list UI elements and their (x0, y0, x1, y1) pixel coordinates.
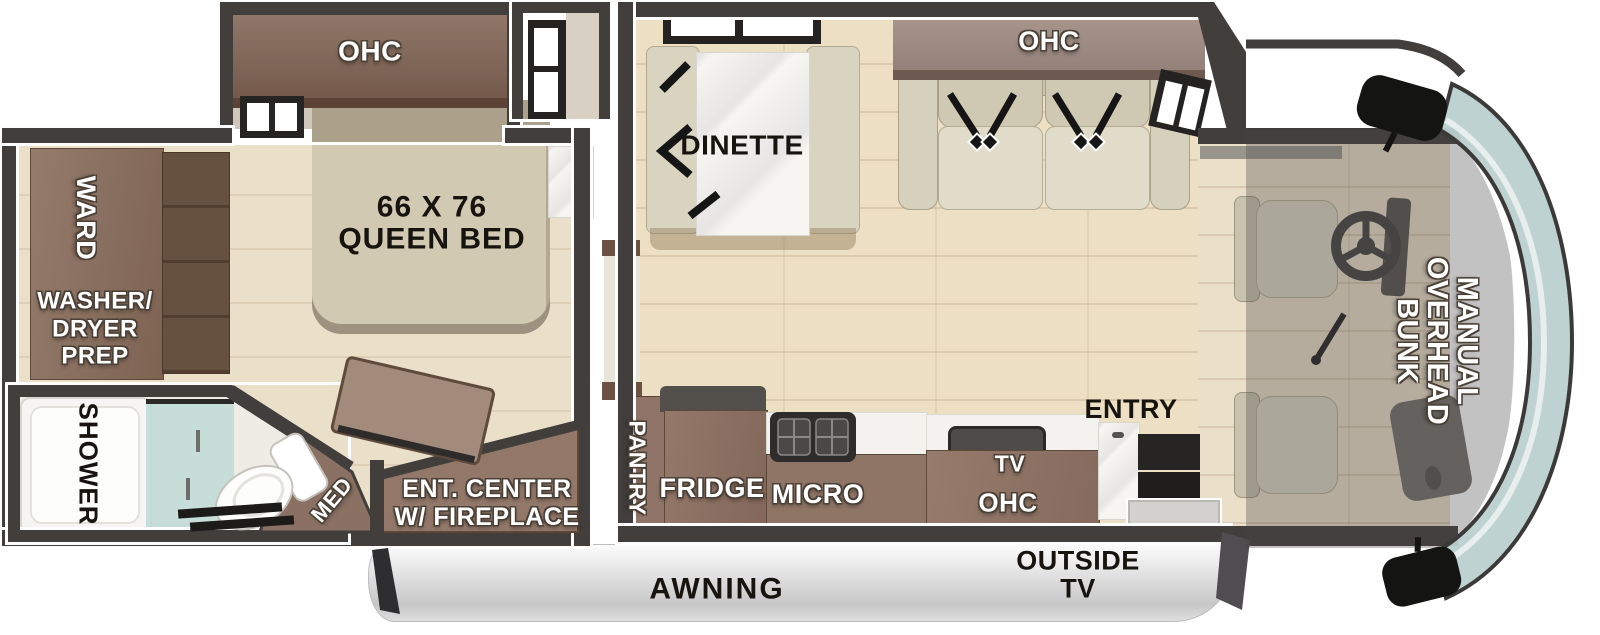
living-ohc-cabinet (893, 8, 1205, 80)
fridge (664, 410, 768, 530)
cab-side-window-band (1200, 146, 1342, 159)
living-wall-bottom (618, 526, 1230, 542)
wardrobe-cabinet (30, 148, 164, 380)
tv-ohc-cabinet (926, 450, 1100, 530)
entry-step-upper (1138, 434, 1200, 470)
front-cap (1246, 48, 1464, 140)
sofa-seat-right (1045, 126, 1150, 210)
awning-band (368, 544, 1234, 622)
dinette-bench-right (806, 46, 860, 234)
bedroom-corner-box-walls (512, 2, 610, 119)
side-mirror-bottom (1375, 530, 1464, 610)
passenger-chair-seat (1256, 396, 1338, 494)
washer-dryer-cabinet (162, 152, 230, 374)
windshield-glass (1436, 84, 1572, 598)
living-wall-left (618, 2, 633, 542)
cab-wall-bottom (1230, 526, 1458, 546)
front-cap-top-edge (1246, 44, 1462, 74)
dinette-table (696, 52, 810, 236)
front-slant-wall (1198, 2, 1246, 142)
living-wall-top (618, 2, 1198, 17)
dinette-bench-left (646, 46, 700, 234)
driver-chair-seat (1256, 200, 1338, 298)
bedroom-wall-right (574, 128, 590, 546)
kitchen-lower-cabinets (766, 454, 928, 530)
bedroom-wall-top-a (2, 128, 232, 143)
windshield-highlight (1442, 120, 1544, 564)
sink-faucet (1112, 432, 1124, 438)
sofa-seat-left (938, 126, 1043, 210)
kitchen-counter (766, 412, 928, 458)
rv-floorplan: OHC WARD WASHER/ DRYER PREP 66 X 76 QUEE… (0, 0, 1600, 635)
bedroom-slideout-walls (220, 2, 520, 142)
bathroom-walls (8, 385, 348, 542)
fridge-top (660, 386, 766, 412)
